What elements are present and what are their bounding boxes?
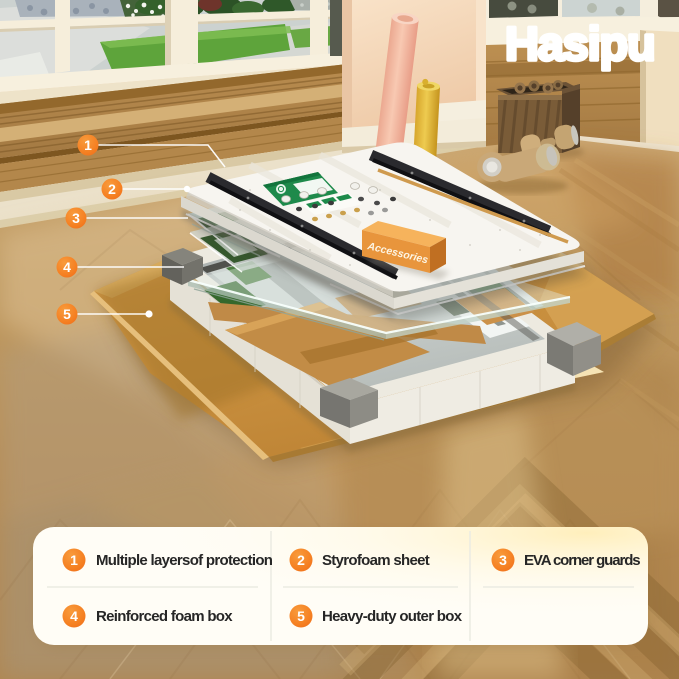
svg-text:4: 4 — [63, 259, 71, 275]
svg-text:Multiple layersof protection: Multiple layersof protection — [96, 552, 273, 569]
svg-text:Styrofoam sheet: Styrofoam sheet — [322, 552, 430, 569]
svg-text:1: 1 — [70, 552, 78, 568]
svg-text:3: 3 — [499, 552, 507, 568]
svg-text:2: 2 — [108, 181, 116, 197]
svg-text:5: 5 — [297, 608, 305, 624]
svg-text:Reinforced foam box: Reinforced foam box — [96, 608, 233, 625]
svg-text:1: 1 — [84, 137, 92, 153]
svg-text:Heavy-duty outer box: Heavy-duty outer box — [322, 608, 463, 625]
svg-text:4: 4 — [70, 608, 78, 624]
svg-text:EVA corner guards: EVA corner guards — [524, 552, 640, 569]
svg-text:Hasipu: Hasipu — [505, 17, 655, 70]
svg-text:3: 3 — [72, 210, 80, 226]
svg-text:2: 2 — [297, 552, 305, 568]
svg-text:5: 5 — [63, 306, 71, 322]
